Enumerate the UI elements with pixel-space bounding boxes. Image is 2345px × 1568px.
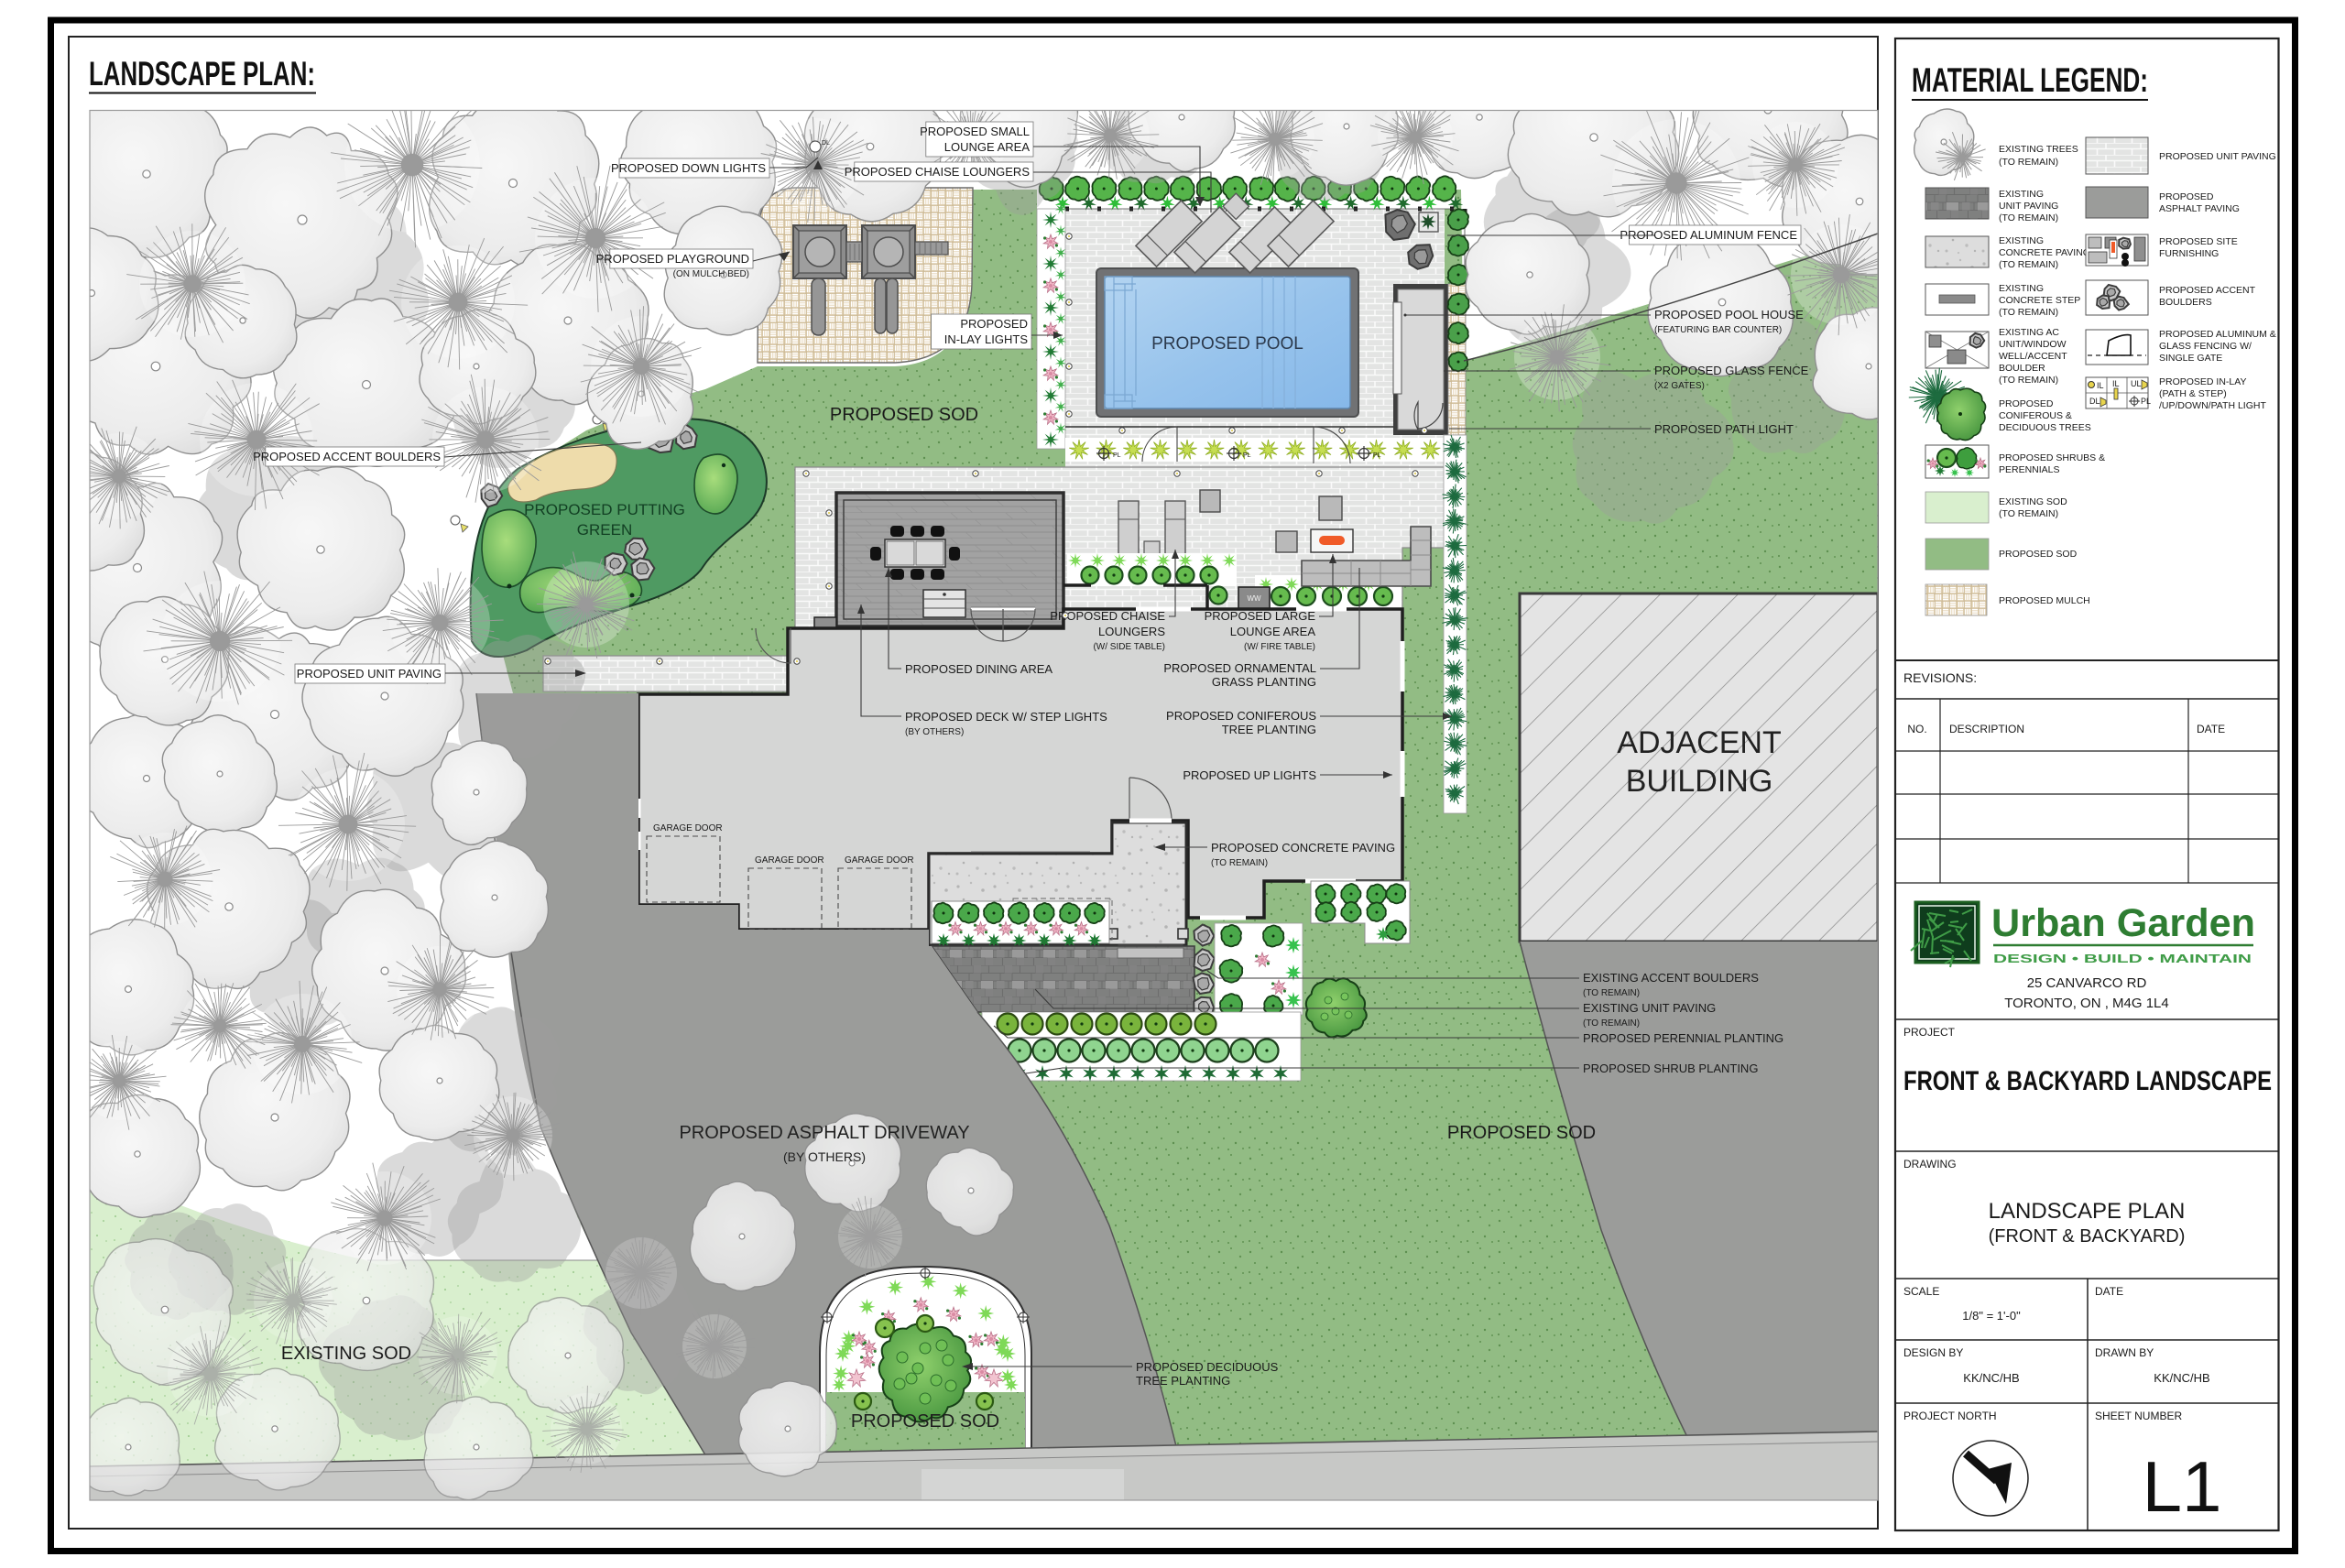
svg-text:1/8" = 1'-0": 1/8" = 1'-0": [1962, 1309, 2021, 1323]
svg-text:FRONT & BACKYARD LANDSCAPE: FRONT & BACKYARD LANDSCAPE: [1903, 1066, 2272, 1096]
svg-text:LANDSCAPE PLAN: LANDSCAPE PLAN: [1989, 1199, 2186, 1224]
svg-text:EXISTING: EXISTING: [1999, 283, 2044, 294]
svg-text:PROPOSED CHAISE LOUNGERS: PROPOSED CHAISE LOUNGERS: [845, 165, 1031, 179]
svg-text:PROPOSED UNIT PAVING: PROPOSED UNIT PAVING: [297, 667, 442, 681]
svg-text:PROPOSED PUTTING: PROPOSED PUTTING: [524, 501, 685, 518]
svg-text:PROPOSED: PROPOSED: [2159, 191, 2214, 202]
svg-text:CONCRETE PAVING: CONCRETE PAVING: [1999, 247, 2090, 258]
svg-text:L1: L1: [2143, 1446, 2222, 1527]
svg-text:PROPOSED ALUMINUM &: PROPOSED ALUMINUM &: [2159, 329, 2276, 340]
svg-text:PROPOSED SHRUBS &: PROPOSED SHRUBS &: [1999, 452, 2105, 463]
svg-text:GARAGE DOOR: GARAGE DOOR: [755, 855, 824, 866]
svg-text:EXISTING SOD: EXISTING SOD: [1999, 496, 2067, 507]
svg-text:EXISTING: EXISTING: [1999, 235, 2044, 246]
svg-text:WW: WW: [1247, 594, 1261, 603]
svg-text:(W/ FIRE TABLE): (W/ FIRE TABLE): [1244, 642, 1315, 652]
svg-text:PROPOSED SOD: PROPOSED SOD: [830, 405, 978, 425]
svg-text:EXISTING AC: EXISTING AC: [1999, 327, 2059, 338]
svg-text:PROPOSED: PROPOSED: [1999, 398, 2054, 409]
svg-text:EXISTING UNIT PAVING: EXISTING UNIT PAVING: [1583, 1001, 1716, 1015]
svg-text:PROPOSED GLASS FENCE: PROPOSED GLASS FENCE: [1654, 364, 1809, 377]
svg-text:DATE: DATE: [2197, 723, 2225, 735]
svg-text:EXISTING TREES: EXISTING TREES: [1999, 144, 2078, 155]
svg-text:BUILDING: BUILDING: [1626, 764, 1773, 799]
svg-text:(TO REMAIN): (TO REMAIN): [1999, 508, 2058, 519]
svg-text:ASPHALT PAVING: ASPHALT PAVING: [2159, 203, 2240, 214]
svg-text:(TO REMAIN): (TO REMAIN): [1999, 212, 2058, 223]
svg-text:SINGLE GATE: SINGLE GATE: [2159, 353, 2222, 364]
svg-text:TREE PLANTING: TREE PLANTING: [1222, 723, 1316, 736]
svg-text:LANDSCAPE PLAN:: LANDSCAPE PLAN:: [89, 55, 315, 93]
svg-text:PL: PL: [1373, 452, 1381, 459]
svg-text:KK/NC/HB: KK/NC/HB: [1963, 1371, 2019, 1385]
svg-text:PROPOSED: PROPOSED: [960, 317, 1028, 331]
svg-text:PL: PL: [1113, 452, 1121, 459]
svg-text:SHEET NUMBER: SHEET NUMBER: [2095, 1410, 2182, 1422]
svg-text:(BY OTHERS): (BY OTHERS): [905, 727, 964, 737]
svg-text:PROPOSED DINING AREA: PROPOSED DINING AREA: [905, 662, 1053, 676]
svg-text:DATE: DATE: [2095, 1285, 2123, 1298]
svg-text:DL: DL: [822, 140, 830, 147]
svg-text:PROPOSED IN-LAY: PROPOSED IN-LAY: [2159, 376, 2247, 387]
svg-text:(TO REMAIN): (TO REMAIN): [1999, 259, 2058, 270]
svg-text:UNIT PAVING: UNIT PAVING: [1999, 201, 2058, 212]
svg-text:BOULDER: BOULDER: [1999, 363, 2045, 374]
svg-text:LOUNGERS: LOUNGERS: [1098, 625, 1165, 638]
svg-text:PROPOSED POOL: PROPOSED POOL: [1151, 334, 1303, 354]
svg-text:LOUNGE AREA: LOUNGE AREA: [944, 140, 1031, 154]
svg-text:25 CANVARCO RD: 25 CANVARCO RD: [2027, 975, 2147, 991]
svg-text:IN-LAY LIGHTS: IN-LAY LIGHTS: [944, 332, 1029, 346]
svg-text:KK/NC/HB: KK/NC/HB: [2154, 1371, 2209, 1385]
svg-text:(PATH & STEP): (PATH & STEP): [2159, 388, 2227, 399]
svg-text:PROPOSED LARGE: PROPOSED LARGE: [1205, 609, 1316, 623]
svg-text:GLASS FENCING W/: GLASS FENCING W/: [2159, 341, 2252, 352]
svg-text:(TO REMAIN): (TO REMAIN): [1999, 375, 2058, 386]
svg-text:PROPOSED CONCRETE PAVING: PROPOSED CONCRETE PAVING: [1211, 841, 1395, 855]
svg-text:GARAGE DOOR: GARAGE DOOR: [845, 855, 914, 866]
svg-text:PROJECT: PROJECT: [1903, 1026, 1956, 1039]
svg-text:LOUNGE AREA: LOUNGE AREA: [1230, 625, 1316, 638]
svg-text:ADJACENT: ADJACENT: [1617, 725, 1781, 760]
svg-text:GARAGE DOOR: GARAGE DOOR: [653, 823, 723, 833]
svg-text:SCALE: SCALE: [1903, 1285, 1939, 1298]
svg-text:DESCRIPTION: DESCRIPTION: [1949, 723, 2024, 735]
svg-text:PL: PL: [1243, 452, 1251, 459]
svg-text:PROPOSED SOD: PROPOSED SOD: [851, 1411, 999, 1432]
svg-text:PERENNIALS: PERENNIALS: [1999, 464, 2060, 475]
svg-text:PROPOSED PATH LIGHT: PROPOSED PATH LIGHT: [1654, 422, 1794, 436]
svg-text:EXISTING: EXISTING: [1999, 189, 2044, 200]
svg-text:PROPOSED SOD: PROPOSED SOD: [1999, 549, 2078, 560]
svg-text:(W/ SIDE TABLE): (W/ SIDE TABLE): [1093, 642, 1165, 652]
svg-text:PROPOSED UNIT PAVING: PROPOSED UNIT PAVING: [2159, 151, 2276, 162]
svg-text:REVISIONS:: REVISIONS:: [1903, 670, 1977, 685]
svg-text:Urban Garden: Urban Garden: [1991, 901, 2255, 945]
svg-text:PROPOSED ACCENT BOULDERS: PROPOSED ACCENT BOULDERS: [253, 450, 441, 463]
svg-text:PROPOSED DECIDUOUS: PROPOSED DECIDUOUS: [1136, 1360, 1279, 1374]
svg-text:NO.: NO.: [1907, 723, 1926, 735]
svg-text:UNIT/WINDOW: UNIT/WINDOW: [1999, 339, 2067, 350]
svg-text:EXISTING ACCENT BOULDERS: EXISTING ACCENT BOULDERS: [1583, 971, 1759, 985]
svg-text:(TO REMAIN): (TO REMAIN): [1583, 988, 1640, 998]
svg-text:(FEATURING BAR COUNTER): (FEATURING BAR COUNTER): [1654, 325, 1782, 335]
svg-text:DESIGN • BUILD • MAINTAIN: DESIGN • BUILD • MAINTAIN: [1993, 952, 2252, 965]
svg-text:PROPOSED POOL HOUSE: PROPOSED POOL HOUSE: [1654, 308, 1804, 321]
svg-text:CONIFEROUS &: CONIFEROUS &: [1999, 410, 2072, 421]
svg-text:PROPOSED PERENNIAL PLANTING: PROPOSED PERENNIAL PLANTING: [1583, 1031, 1783, 1045]
svg-text:PROJECT NORTH: PROJECT NORTH: [1903, 1410, 1997, 1422]
svg-text:PROPOSED SMALL: PROPOSED SMALL: [920, 125, 1030, 138]
svg-text:CONCRETE STEP: CONCRETE STEP: [1999, 295, 2080, 306]
svg-text:(X2 GATES): (X2 GATES): [1654, 381, 1705, 391]
svg-text:PROPOSED SHRUB PLANTING: PROPOSED SHRUB PLANTING: [1583, 1062, 1758, 1075]
svg-text:PROPOSED SOD: PROPOSED SOD: [1447, 1123, 1596, 1143]
svg-text:(BY OTHERS): (BY OTHERS): [783, 1149, 866, 1164]
svg-text:UL: UL: [2131, 379, 2142, 388]
svg-text:DRAWING: DRAWING: [1903, 1158, 1957, 1171]
svg-text:TREE PLANTING: TREE PLANTING: [1136, 1374, 1230, 1388]
svg-text:DESIGN BY: DESIGN BY: [1903, 1346, 1963, 1359]
svg-text:DL: DL: [2089, 397, 2100, 406]
svg-text:(ON MULCH BED): (ON MULCH BED): [673, 269, 749, 279]
svg-text:MATERIAL LEGEND:: MATERIAL LEGEND:: [1912, 61, 2148, 99]
svg-text:PROPOSED ORNAMENTAL: PROPOSED ORNAMENTAL: [1163, 661, 1316, 675]
svg-text:PROPOSED CONIFEROUS: PROPOSED CONIFEROUS: [1166, 709, 1316, 723]
svg-text:GRASS PLANTING: GRASS PLANTING: [1212, 675, 1316, 689]
svg-text:(FRONT & BACKYARD): (FRONT & BACKYARD): [1989, 1226, 2186, 1247]
svg-text:EXISTING SOD: EXISTING SOD: [281, 1344, 411, 1364]
svg-text:(TO REMAIN): (TO REMAIN): [1999, 307, 2058, 318]
svg-text:FURNISHING: FURNISHING: [2159, 248, 2219, 259]
svg-text:PROPOSED DECK W/ STEP LIGHTS: PROPOSED DECK W/ STEP LIGHTS: [905, 710, 1107, 724]
svg-text:/UP/DOWN/PATH LIGHT: /UP/DOWN/PATH LIGHT: [2159, 400, 2266, 411]
svg-text:PROPOSED DOWN LIGHTS: PROPOSED DOWN LIGHTS: [611, 161, 766, 175]
svg-text:PROPOSED ACCENT: PROPOSED ACCENT: [2159, 285, 2256, 296]
svg-text:BOULDERS: BOULDERS: [2159, 297, 2212, 308]
svg-text:PROPOSED PLAYGROUND: PROPOSED PLAYGROUND: [596, 252, 749, 266]
svg-text:IL: IL: [2112, 379, 2120, 388]
svg-text:(TO REMAIN): (TO REMAIN): [1999, 157, 2058, 168]
svg-text:DECIDUOUS TREES: DECIDUOUS TREES: [1999, 422, 2091, 433]
svg-text:TORONTO, ON , M4G 1L4: TORONTO, ON , M4G 1L4: [2004, 996, 2169, 1011]
svg-text:IL: IL: [2097, 381, 2104, 390]
svg-text:(TO REMAIN): (TO REMAIN): [1211, 858, 1268, 868]
svg-text:PROPOSED SITE: PROPOSED SITE: [2159, 236, 2238, 247]
svg-text:PROPOSED UP LIGHTS: PROPOSED UP LIGHTS: [1183, 768, 1316, 782]
svg-text:PROPOSED ASPHALT DRIVEWAY: PROPOSED ASPHALT DRIVEWAY: [679, 1123, 969, 1143]
svg-text:WELL/ACCENT: WELL/ACCENT: [1999, 351, 2067, 362]
svg-text:(TO REMAIN): (TO REMAIN): [1583, 1018, 1640, 1029]
svg-text:PL: PL: [2141, 397, 2151, 406]
svg-text:PROPOSED MULCH: PROPOSED MULCH: [1999, 595, 2090, 606]
svg-text:GREEN: GREEN: [577, 521, 632, 539]
svg-text:DRAWN BY: DRAWN BY: [2095, 1346, 2154, 1359]
